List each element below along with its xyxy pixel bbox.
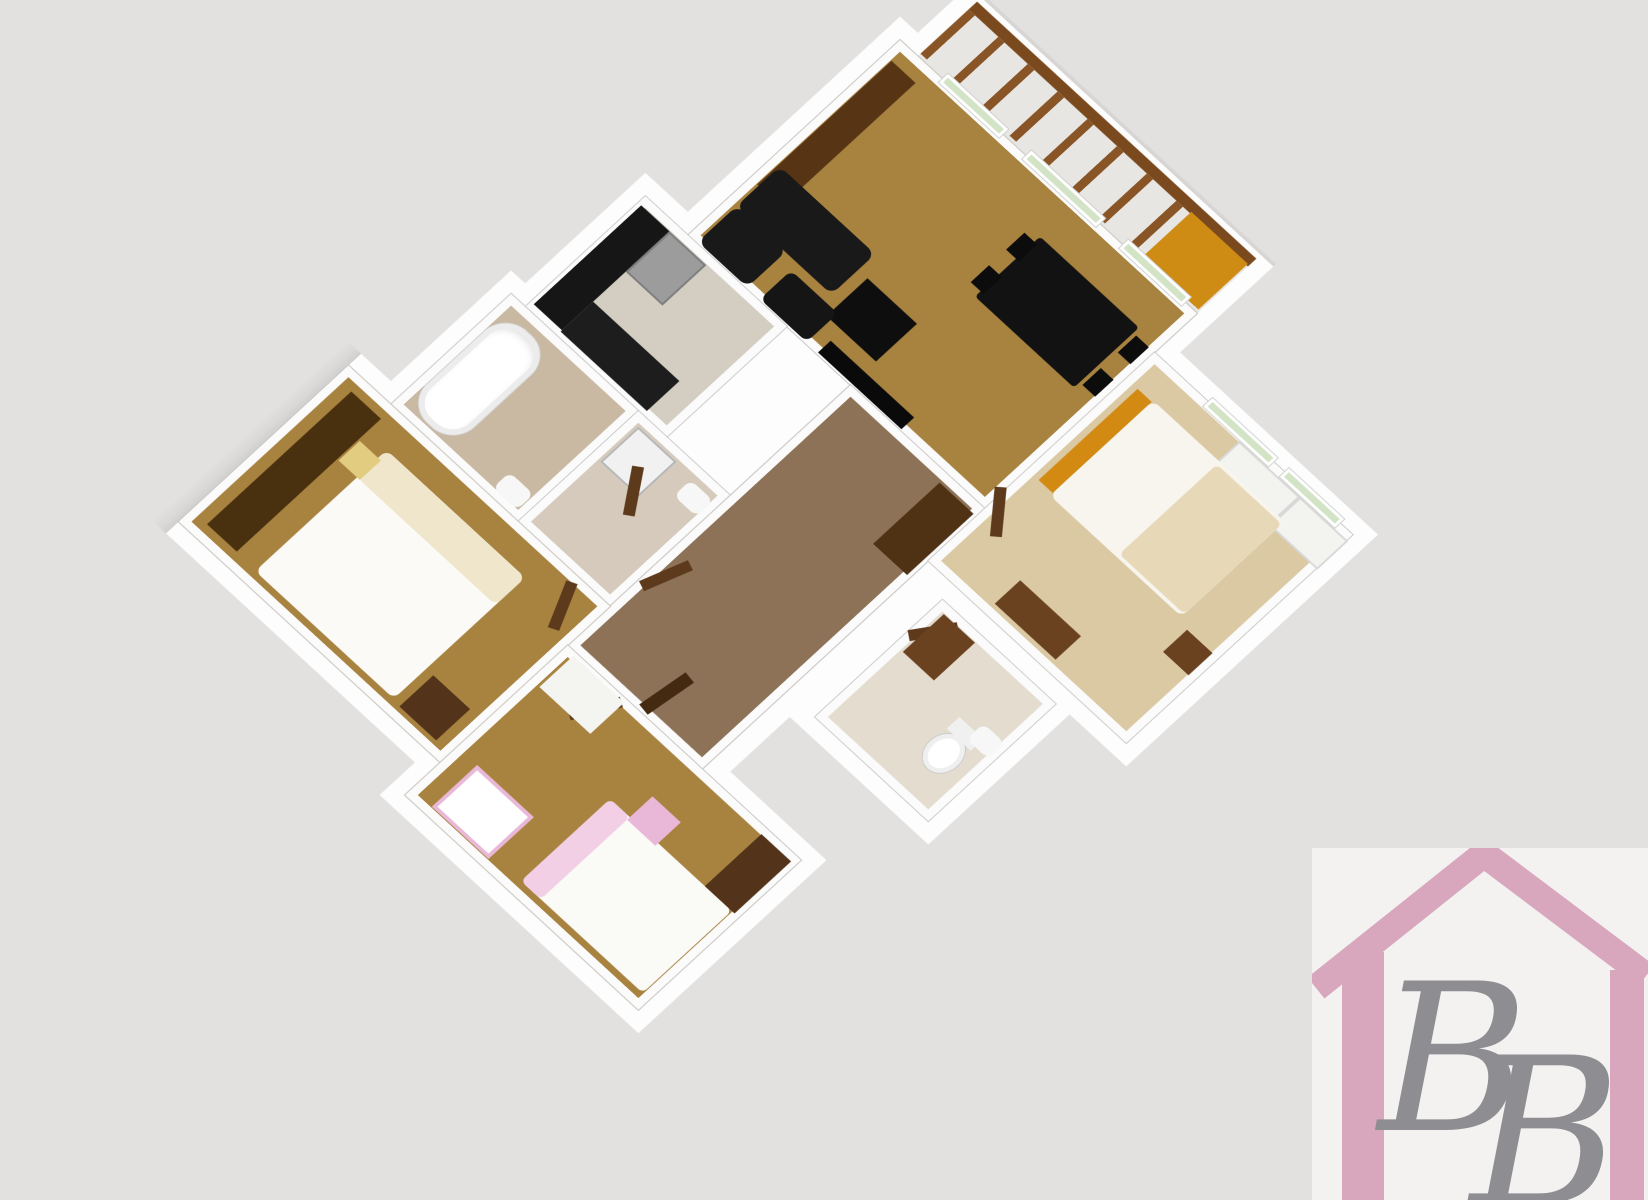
logo-letter-b2: B [1466, 1015, 1621, 1200]
agency-logo: B B [1312, 848, 1648, 1200]
agency-logo-graphic: B B [1312, 848, 1648, 1200]
page-background: B B [0, 0, 1648, 1200]
floor-plan [126, 0, 1515, 1169]
